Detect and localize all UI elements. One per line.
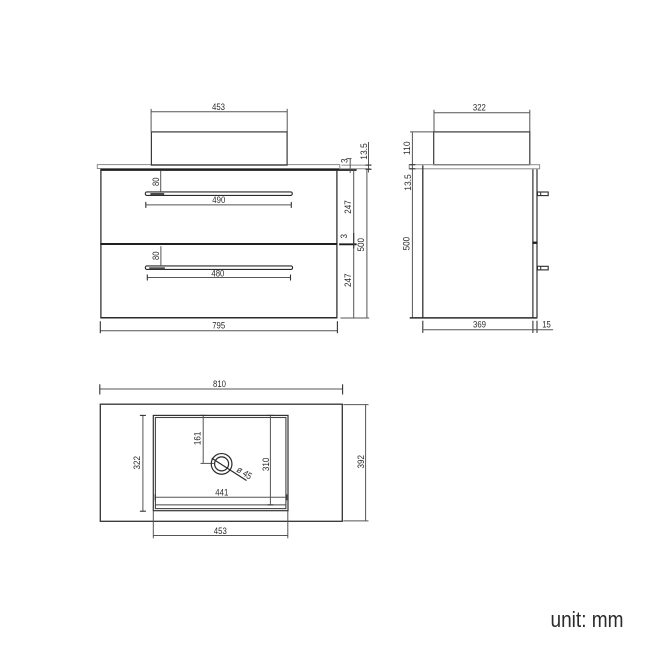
svg-text:500: 500 [356,238,367,252]
svg-text:247: 247 [343,274,354,288]
svg-text:13.5: 13.5 [359,143,370,160]
svg-text:247: 247 [343,200,354,214]
svg-text:453: 453 [212,102,225,113]
svg-text:810: 810 [213,379,226,390]
svg-text:369: 369 [473,320,486,331]
svg-text:3: 3 [340,159,351,164]
svg-text:unit: mm: unit: mm [551,607,624,632]
svg-text:392: 392 [356,455,367,469]
svg-text:480: 480 [211,268,224,279]
svg-text:80: 80 [151,252,162,260]
svg-text:15: 15 [542,320,551,331]
svg-text:453: 453 [214,526,227,537]
svg-text:80: 80 [151,177,162,186]
svg-text:500: 500 [402,237,413,251]
svg-text:322: 322 [132,456,143,470]
svg-text:441: 441 [215,488,228,499]
svg-text:795: 795 [212,321,225,332]
svg-text:110: 110 [402,141,413,155]
svg-text:3: 3 [339,234,350,239]
svg-text:490: 490 [212,195,225,206]
svg-text:161: 161 [193,432,204,446]
svg-text:322: 322 [473,103,486,114]
svg-text:310: 310 [261,458,272,472]
svg-text:13.5: 13.5 [403,174,414,191]
